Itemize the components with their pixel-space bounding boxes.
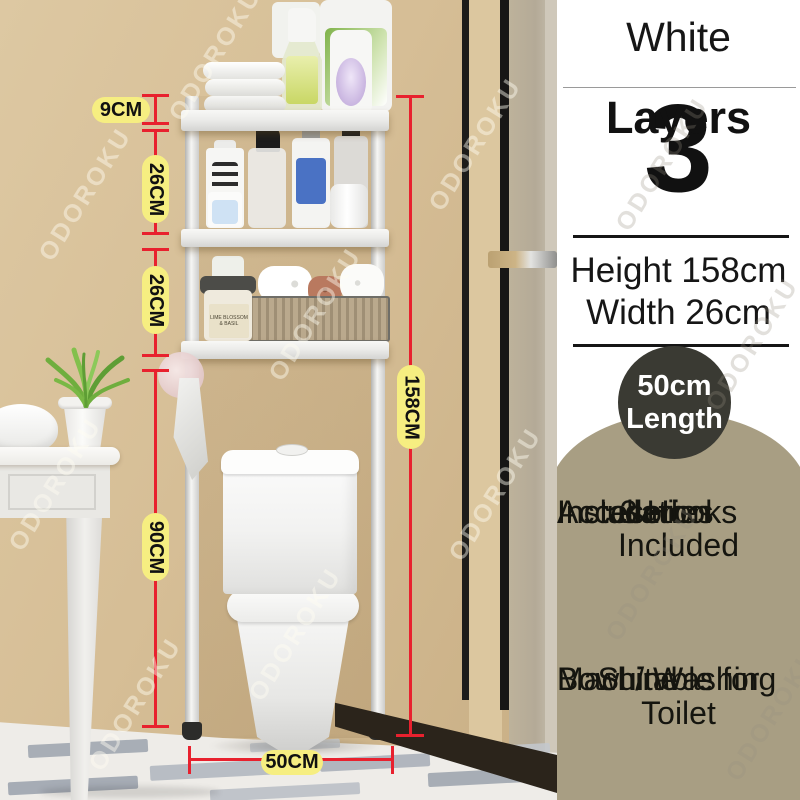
feature-line: Included xyxy=(557,496,678,529)
watermark: ODOROKU xyxy=(33,123,138,267)
dimension-cap xyxy=(142,354,169,357)
toilet-flush-button xyxy=(276,444,308,456)
suitability-line: Machine xyxy=(557,662,678,696)
measurement-label-90cm: 90CM xyxy=(142,513,169,581)
measurement-label-9cm: 9CM xyxy=(92,97,150,123)
measurement-label-26cm-upper: 26CM xyxy=(142,155,169,223)
vanity-shadow xyxy=(40,786,220,798)
width-spec: Width 26cm xyxy=(557,292,800,334)
rack-shelf-bottom xyxy=(181,341,389,359)
shower-glass-pane xyxy=(469,0,502,762)
shower-glass-edge xyxy=(545,0,557,800)
paper-roll xyxy=(330,184,368,228)
folded-towel xyxy=(203,62,285,79)
spray-head xyxy=(288,8,316,42)
measurement-label-50cm: 50CM xyxy=(261,750,323,775)
rack-leg-right xyxy=(371,96,385,726)
color-name: White xyxy=(557,14,800,61)
dimension-cap xyxy=(391,746,394,774)
vanity-top xyxy=(0,447,120,465)
green-plant xyxy=(34,346,138,408)
spray-bottle-label xyxy=(286,56,318,104)
dimension-cap xyxy=(396,734,424,737)
toilet-seat xyxy=(227,590,359,622)
rack-shelf-top xyxy=(181,110,389,131)
shampoo-label xyxy=(212,162,238,192)
height-spec: Height 158cm xyxy=(557,250,800,292)
product-listing-image: LIME BLOSSOM & BASIL xyxy=(0,0,800,800)
small-bottle-label xyxy=(212,200,238,224)
rack-shelf-middle xyxy=(181,229,389,247)
rack-foot-left xyxy=(182,722,202,740)
spec-panel: White 3 Layers Height 158cm Width 26cm 5… xyxy=(557,0,800,800)
measurement-label-26cm-lower: 26CM xyxy=(142,266,169,334)
dimension-line-9cm xyxy=(154,96,157,124)
length-word: Length xyxy=(626,403,723,436)
lotion-label xyxy=(296,158,326,204)
folded-towel xyxy=(205,79,285,96)
layers-word: Layers xyxy=(606,92,751,144)
dimensions-text: Height 158cm Width 26cm xyxy=(557,250,800,334)
measurement-label-158cm: 158CM xyxy=(397,365,425,449)
jar-label: LIME BLOSSOM & BASIL xyxy=(209,304,249,338)
vanity-drawer-panel xyxy=(8,474,96,510)
dimension-cap xyxy=(142,232,169,235)
length-value: 50cm xyxy=(637,370,711,403)
shower-door-handle xyxy=(488,251,557,268)
shower-frame-right xyxy=(500,0,509,710)
wicker-basket xyxy=(248,296,390,342)
shower-frame-left xyxy=(462,0,469,700)
softener-label xyxy=(336,58,366,106)
bathroom-photo: LIME BLOSSOM & BASIL xyxy=(0,0,557,800)
length-badge: 50cm Length xyxy=(618,346,731,459)
clear-bottle xyxy=(248,148,286,228)
divider xyxy=(573,235,789,238)
tan-blob-background xyxy=(557,413,800,800)
dimension-cap xyxy=(142,725,169,728)
dimension-cap xyxy=(142,122,169,125)
